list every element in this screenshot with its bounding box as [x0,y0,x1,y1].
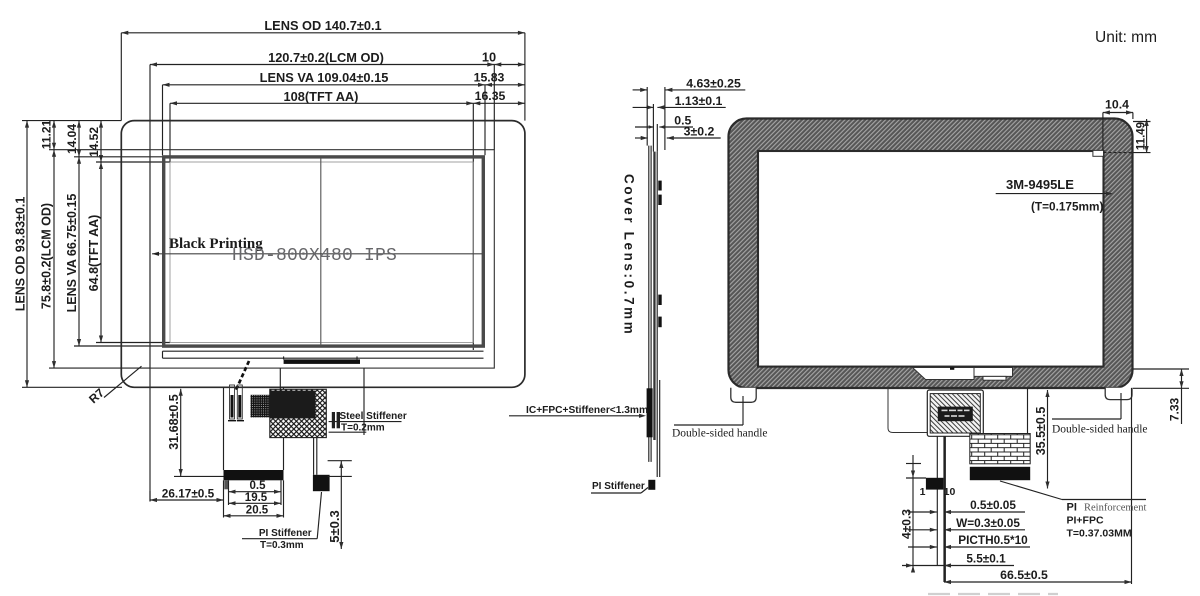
svg-text:PICTH0.5*10: PICTH0.5*10 [958,533,1028,547]
svg-text:15.83: 15.83 [474,71,505,85]
svg-text:IC+FPC+Stiffener<1.3mm: IC+FPC+Stiffener<1.3mm [526,405,648,416]
svg-text:R7: R7 [86,385,107,406]
svg-text:PI Stiffener: PI Stiffener [259,528,312,539]
svg-text:Cover Lens:0.7mm: Cover Lens:0.7mm [622,174,637,336]
svg-text:Unit: mm: Unit: mm [1095,29,1157,46]
svg-text:4±0.3: 4±0.3 [900,509,914,539]
svg-text:108(TFT AA): 108(TFT AA) [284,89,359,104]
svg-text:3±0.2: 3±0.2 [684,124,715,138]
svg-text:66.5±0.5: 66.5±0.5 [1000,568,1048,582]
svg-text:16.35: 16.35 [475,89,506,103]
svg-text:LENS VA 109.04±0.15: LENS VA 109.04±0.15 [260,70,389,85]
svg-text:PI Stiffener: PI Stiffener [592,481,645,492]
svg-text:120.7±0.2(LCM OD): 120.7±0.2(LCM OD) [268,50,384,65]
svg-text:LENS OD 140.7±0.1: LENS OD 140.7±0.1 [264,18,381,33]
svg-text:7.33: 7.33 [1168,397,1182,421]
svg-text:3M-9495LE: 3M-9495LE [1006,177,1074,192]
svg-text:HSD-800X480 IPS: HSD-800X480 IPS [232,246,397,266]
svg-text:0.5±0.05: 0.5±0.05 [970,498,1016,512]
svg-text:T=0.3mm: T=0.3mm [260,540,304,551]
svg-text:W=0.3±0.05: W=0.3±0.05 [956,516,1020,530]
svg-text:75.8±0.2(LCM OD): 75.8±0.2(LCM OD) [40,203,54,309]
svg-text:10: 10 [944,486,956,498]
svg-text:5±0.3: 5±0.3 [327,510,342,542]
svg-text:Steel Stiffener: Steel Stiffener [340,411,407,422]
svg-text:LENS VA 66.75±0.15: LENS VA 66.75±0.15 [65,194,79,313]
svg-text:31.68±0.5: 31.68±0.5 [167,394,181,450]
svg-text:T=0.37.03MM: T=0.37.03MM [1067,527,1132,539]
svg-text:11.49: 11.49 [1136,122,1148,150]
svg-text:PI+FPC: PI+FPC [1067,514,1104,526]
svg-text:11.21: 11.21 [40,119,54,149]
svg-text:5.5±0.1: 5.5±0.1 [966,552,1006,566]
svg-text:10.4: 10.4 [1105,98,1129,112]
svg-text:1: 1 [920,486,926,498]
svg-text:1.13±0.1: 1.13±0.1 [675,94,723,108]
svg-text:(T=0.175mm): (T=0.175mm) [1031,199,1104,213]
svg-text:Double-sided handle: Double-sided handle [672,427,768,439]
svg-text:PI: PI [1067,501,1077,513]
svg-text:19.5: 19.5 [245,492,268,504]
svg-text:14.52: 14.52 [87,127,101,157]
svg-text:20.5: 20.5 [246,505,269,517]
svg-text:0.5: 0.5 [250,480,267,492]
svg-text:Reinforcement: Reinforcement [1084,502,1146,513]
svg-text:4.63±0.25: 4.63±0.25 [686,76,741,90]
svg-text:26.17±0.5: 26.17±0.5 [162,487,215,501]
svg-text:10: 10 [482,50,496,65]
svg-text:Double-sided handle: Double-sided handle [1052,423,1148,435]
svg-text:64.8(TFT AA): 64.8(TFT AA) [87,215,101,292]
svg-text:LENS OD 93.83±0.1: LENS OD 93.83±0.1 [14,197,28,312]
svg-text:35.5±0.5: 35.5±0.5 [1034,407,1048,456]
